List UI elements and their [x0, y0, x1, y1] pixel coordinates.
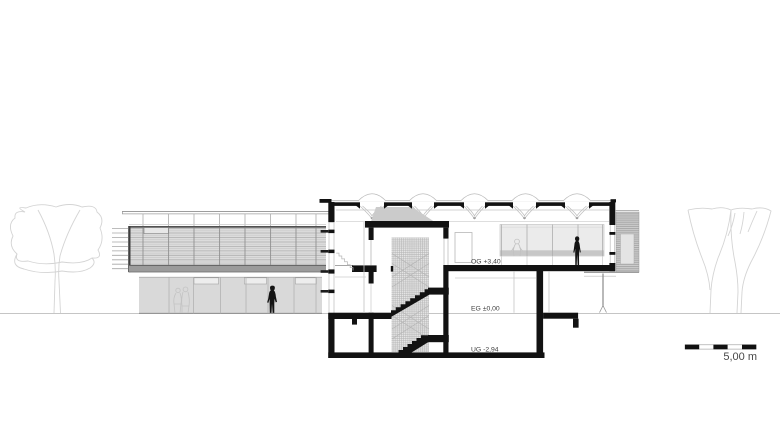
svg-text:EG ±0,00: EG ±0,00: [471, 306, 500, 313]
svg-text:5,00 m: 5,00 m: [723, 351, 757, 363]
svg-text:UG -2,94: UG -2,94: [471, 347, 499, 354]
svg-text:OG +3,40: OG +3,40: [471, 259, 501, 266]
